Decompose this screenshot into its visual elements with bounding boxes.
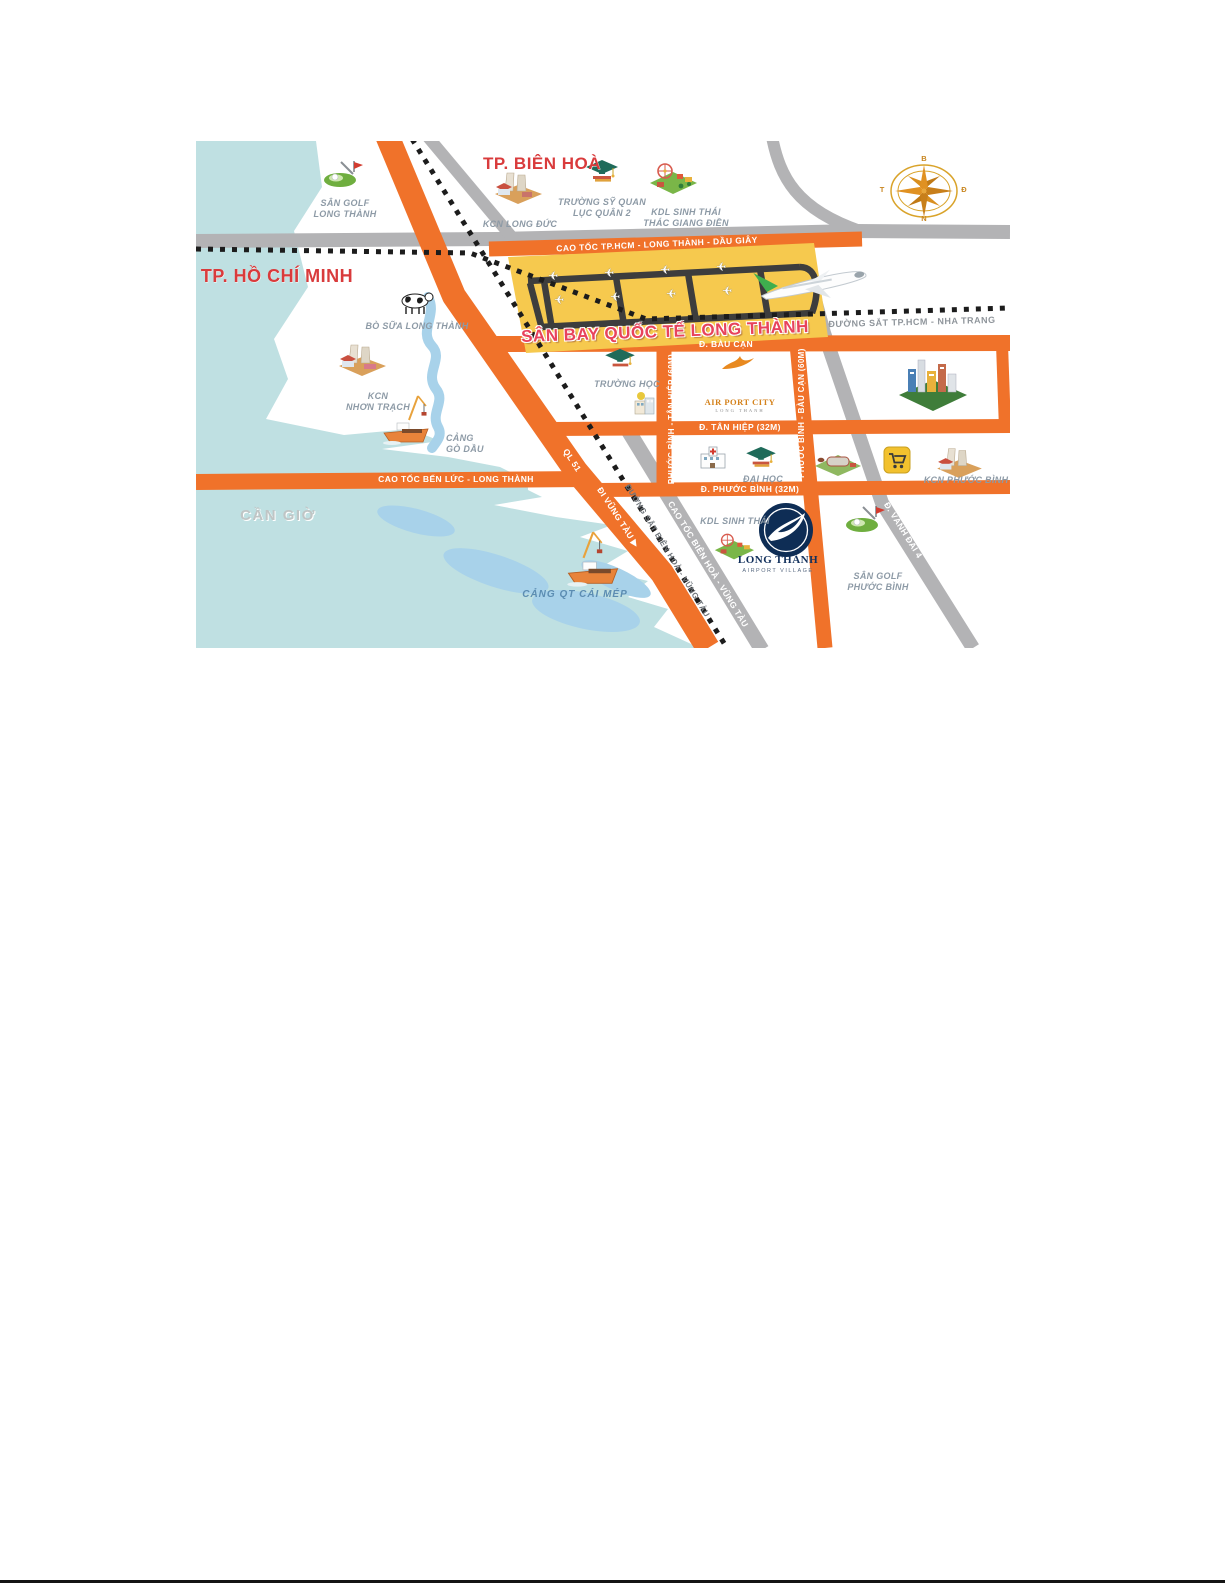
runway-plane-icon: ✈ bbox=[604, 266, 614, 280]
compass-east-label: Đ bbox=[958, 185, 970, 194]
runway-plane-icon: ✈ bbox=[548, 269, 558, 283]
page-bottom-rule bbox=[0, 1580, 1225, 1583]
graduation-cap-icon bbox=[603, 347, 637, 371]
stadium-icon bbox=[812, 447, 864, 477]
runway-plane-icon: ✈ bbox=[666, 287, 676, 301]
runway-plane-icon: ✈ bbox=[610, 290, 620, 304]
graduation-cap-icon bbox=[585, 158, 619, 184]
airport-city-bird-icon bbox=[720, 353, 756, 373]
compass-south-label: N bbox=[918, 214, 930, 223]
theme-park-icon bbox=[645, 160, 701, 196]
golf-course-icon bbox=[842, 503, 886, 533]
golf-course-icon bbox=[320, 158, 364, 188]
factory-icon bbox=[492, 165, 544, 205]
graduation-cap-icon bbox=[745, 445, 777, 469]
theme-park-icon bbox=[710, 531, 758, 561]
compass-icon bbox=[888, 162, 960, 220]
location-map: ✈ ✈ ✈ ✈ ✈ ✈ ✈ ✈ B Đ N T bbox=[196, 141, 1010, 648]
cow-icon bbox=[396, 289, 438, 315]
runway-plane-icon: ✈ bbox=[660, 263, 670, 277]
cargo-ship-icon bbox=[564, 555, 622, 587]
cargo-ship-icon bbox=[380, 417, 432, 445]
runway-plane-icon: ✈ bbox=[722, 284, 732, 298]
school-building-icon bbox=[632, 391, 658, 417]
factory-icon bbox=[336, 337, 388, 377]
compass-north-label: B bbox=[918, 154, 930, 163]
supermarket-icon bbox=[882, 445, 912, 475]
city-buildings-icon bbox=[895, 355, 971, 413]
page: { "city_labels": { "bien_hoa": "TP. BIÊN… bbox=[0, 0, 1225, 1585]
compass-west-label: T bbox=[876, 185, 888, 194]
factory-icon bbox=[934, 441, 984, 479]
runway-plane-icon: ✈ bbox=[716, 260, 726, 274]
runway-plane-icon: ✈ bbox=[554, 293, 564, 307]
hospital-icon bbox=[698, 445, 728, 471]
airport-village-logo-icon bbox=[758, 502, 814, 558]
